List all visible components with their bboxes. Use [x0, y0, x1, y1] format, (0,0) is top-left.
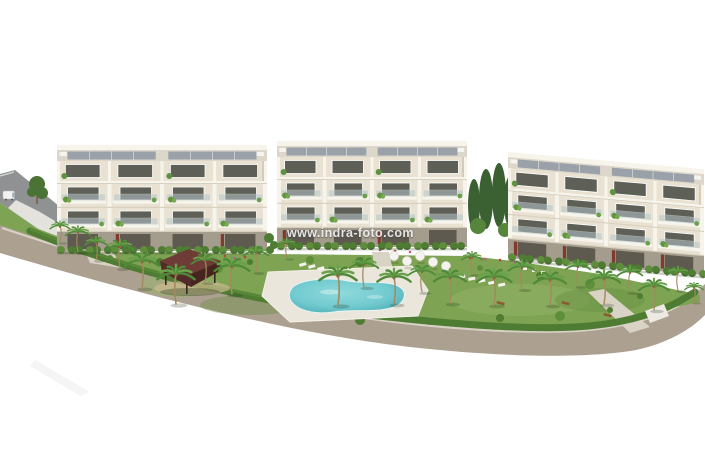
shrub	[607, 307, 613, 313]
cypress-tree	[492, 163, 506, 227]
balcony-railing	[166, 218, 210, 225]
penthouse-window	[614, 181, 646, 197]
shrub	[477, 265, 483, 271]
shrub	[266, 246, 274, 254]
balcony-plant	[257, 198, 262, 203]
door-accent	[378, 230, 381, 244]
shrub	[496, 314, 504, 322]
penthouse-window	[663, 185, 695, 201]
penthouse-window	[565, 176, 597, 192]
scene-svg	[0, 0, 705, 470]
apartment-building-right	[508, 152, 705, 279]
balcony-slab	[218, 201, 264, 204]
balcony-plant	[166, 173, 172, 179]
pergola-post	[214, 272, 216, 283]
flower-bed	[224, 255, 227, 258]
render-canvas: www.indra-foto.com	[0, 0, 705, 470]
balcony-railing	[219, 194, 263, 201]
balcony-slab	[113, 201, 159, 204]
flower-bed	[499, 259, 502, 262]
penthouse-window	[427, 161, 458, 174]
balcony-railing	[328, 190, 368, 197]
apartment-building-left	[57, 145, 267, 255]
balcony-railing	[114, 194, 158, 201]
penthouse-window	[65, 165, 100, 178]
penthouse-window	[380, 161, 411, 174]
balcony-plant	[362, 194, 367, 199]
balcony-railing	[281, 214, 321, 221]
shrub	[306, 256, 314, 264]
balcony-plant	[315, 218, 320, 223]
penthouse-window	[516, 172, 548, 188]
balcony-plant	[204, 222, 209, 227]
balcony-plant	[61, 173, 67, 179]
door-accent	[221, 234, 224, 248]
balcony-railing	[376, 214, 416, 221]
balcony-plant	[410, 218, 415, 223]
shrub	[247, 259, 253, 265]
door-accent	[563, 246, 566, 260]
balcony-plant	[457, 194, 462, 199]
balcony-plant	[281, 169, 287, 175]
penthouse-window	[332, 161, 363, 174]
door-accent	[514, 242, 517, 256]
balcony-slab	[165, 225, 211, 228]
penthouse-window	[285, 161, 316, 174]
roof-parapet	[57, 145, 267, 150]
balcony-plant	[99, 222, 104, 227]
apartment-building-center	[277, 141, 467, 251]
balcony-railing	[423, 190, 463, 197]
penthouse-window	[170, 165, 205, 178]
flower-bed	[484, 258, 487, 261]
flower-bed	[409, 251, 412, 254]
penthouse-window	[118, 165, 153, 178]
roof-parapet	[277, 141, 467, 146]
service-van	[3, 191, 15, 201]
shrub	[555, 311, 565, 321]
balcony-railing	[61, 218, 105, 225]
door-accent	[661, 254, 664, 268]
balcony-plant	[152, 198, 157, 203]
penthouse-window	[223, 165, 258, 178]
balcony-plant	[376, 169, 382, 175]
